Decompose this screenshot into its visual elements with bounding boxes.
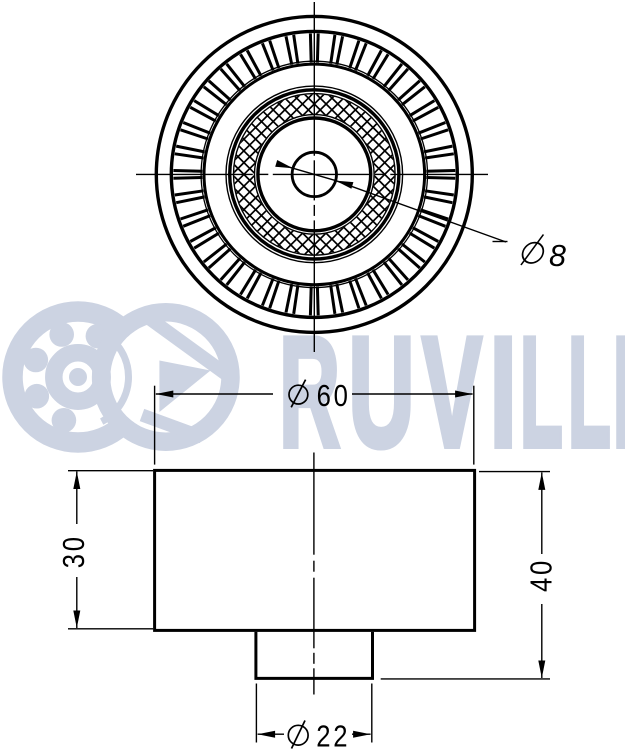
svg-text:40: 40 [524, 558, 557, 592]
svg-text:E: E [613, 304, 625, 479]
svg-text:L: L [568, 304, 611, 480]
svg-text:L: L [520, 304, 563, 480]
svg-text:I: I [490, 304, 517, 479]
svg-text:30: 30 [57, 534, 90, 568]
svg-text:22: 22 [316, 720, 350, 753]
svg-text:U: U [349, 306, 415, 481]
svg-text:8: 8 [549, 239, 566, 273]
svg-text:V: V [422, 306, 482, 480]
svg-text:60: 60 [317, 379, 351, 412]
